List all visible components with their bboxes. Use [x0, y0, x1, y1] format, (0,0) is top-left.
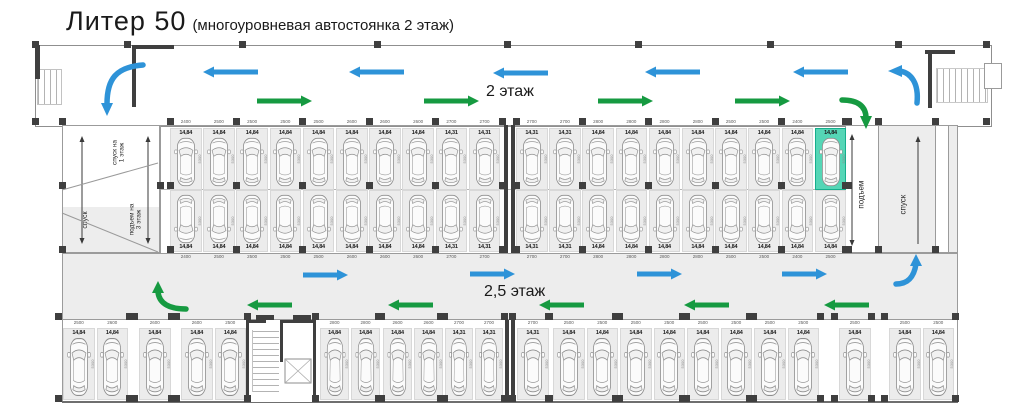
- stall-width-dim: 2800: [614, 254, 650, 259]
- stall-area-label: 14,84: [617, 244, 647, 250]
- column: [712, 118, 719, 125]
- column: [952, 313, 959, 320]
- stall-area-label: 14,84: [683, 244, 713, 250]
- parking-stall[interactable]: 14,845300: [351, 328, 380, 400]
- parking-stall[interactable]: 14,845300: [236, 128, 268, 190]
- stall-width-dim: 2800: [647, 254, 683, 259]
- parking-stall[interactable]: 14,845300: [63, 328, 95, 400]
- column: [545, 313, 552, 320]
- column: [32, 41, 39, 48]
- stall-area-label: 14,84: [271, 244, 301, 250]
- car-icon: [387, 337, 409, 397]
- parking-stall[interactable]: 14,845300: [215, 328, 247, 400]
- ramp-strip: [948, 126, 957, 252]
- column: [767, 41, 774, 48]
- stall-width-dim: 2600: [95, 320, 131, 325]
- parking-stall[interactable]: 14,845300: [369, 128, 401, 190]
- stall-area-label: 14,84: [655, 330, 685, 336]
- stall-area-label: 14,84: [337, 130, 367, 136]
- car-icon: [652, 137, 677, 187]
- stall-area-label: 14,84: [237, 244, 267, 250]
- column: [299, 182, 306, 189]
- stall-area-label: 14,84: [840, 330, 870, 336]
- car-icon: [218, 337, 243, 397]
- plan-title-sub: (многоуровневая автостоянка 2 этаж): [192, 17, 454, 34]
- stall-area-label: 14,84: [182, 330, 212, 336]
- stall-area-label: 14,84: [352, 330, 379, 336]
- stall-width-dim: 2600: [412, 320, 445, 325]
- stall-area-label: 14,84: [237, 130, 267, 136]
- parking-stall[interactable]: 14,845300: [839, 328, 871, 400]
- column: [545, 395, 552, 402]
- column: [513, 246, 520, 253]
- parking-stall[interactable]: 14,845300: [748, 128, 780, 190]
- car-icon: [207, 137, 232, 187]
- column: [645, 182, 652, 189]
- stall-area-label: 14,31: [517, 130, 547, 136]
- parking-stall[interactable]: 14,845300: [620, 328, 652, 400]
- car-icon: [174, 137, 199, 187]
- car-icon: [240, 194, 265, 244]
- parking-stall[interactable]: 14,845300: [782, 190, 814, 252]
- column: [499, 182, 506, 189]
- parking-stall[interactable]: 14,845300: [181, 328, 213, 400]
- column: [778, 118, 785, 125]
- floor-label-2-5: 2,5 этаж: [484, 283, 545, 301]
- stall-area-label: 14,31: [518, 330, 548, 336]
- column: [513, 182, 520, 189]
- stall-width-dim: 2500: [746, 119, 782, 124]
- stall-area-label: 14,31: [437, 130, 467, 136]
- stall-width-dim: 2600: [137, 320, 173, 325]
- column: [679, 395, 686, 402]
- outer-wall-right: [957, 125, 958, 403]
- stall-area-label: 14,84: [783, 130, 813, 136]
- ramp-label-down-right: спуск: [898, 187, 907, 223]
- ramp-label-up-3: подъем на 3 этаж: [129, 192, 144, 246]
- stall-width-dim: 2800: [349, 320, 382, 325]
- wall: [928, 50, 932, 108]
- parking-stall[interactable]: 14,845300: [553, 328, 585, 400]
- stall-area-label: 14,84: [617, 130, 647, 136]
- stall-area-label: 14,84: [650, 244, 680, 250]
- stall-width-dim: 2500: [551, 320, 587, 325]
- stall-width-dim: 2500: [719, 320, 755, 325]
- parking-stall[interactable]: 14,315300: [469, 190, 501, 252]
- column: [504, 41, 511, 48]
- parking-stall[interactable]: 14,845300: [336, 128, 368, 190]
- column: [746, 395, 753, 402]
- stall-width-dim: 2500: [746, 254, 782, 259]
- joint-wall: [504, 125, 508, 253]
- column: [374, 41, 381, 48]
- column: [645, 246, 652, 253]
- parking-stall[interactable]: 14,845300: [270, 128, 302, 190]
- column: [55, 313, 62, 320]
- stall-area-label: 14,84: [304, 130, 334, 136]
- parking-stall[interactable]: 14,845300: [402, 128, 434, 190]
- parking-stall[interactable]: 14,845300: [721, 328, 753, 400]
- wall: [132, 45, 136, 107]
- stall-width-dim: 2800: [614, 119, 650, 124]
- plan-title-main: Литер 50: [66, 6, 186, 36]
- column: [233, 246, 240, 253]
- car-icon: [785, 137, 810, 187]
- stall-area-label: 14,84: [716, 244, 746, 250]
- column: [712, 246, 719, 253]
- stall-width-dim: 2500: [887, 320, 923, 325]
- parking-stall[interactable]: 14,315300: [475, 328, 503, 400]
- stall-area-label: 14,31: [470, 130, 500, 136]
- stall-area-label: 14,84: [683, 130, 713, 136]
- car-icon: [100, 337, 125, 397]
- car-icon: [340, 194, 365, 244]
- stall-width-dim: 2500: [268, 254, 304, 259]
- column: [131, 395, 138, 402]
- stall-area-label: 14,84: [650, 130, 680, 136]
- parking-stall[interactable]: 14,845300: [923, 328, 955, 400]
- stall-width-dim: 2600: [334, 119, 370, 124]
- car-icon: [557, 337, 582, 397]
- floor-label-2: 2 этаж: [486, 83, 534, 101]
- joint-wall: [505, 320, 509, 402]
- parking-stall[interactable]: 14,845300: [616, 128, 648, 190]
- car-icon: [273, 194, 298, 244]
- stall-area-label: 14,84: [583, 244, 613, 250]
- car-icon: [406, 194, 431, 244]
- parking-stall[interactable]: 14,845300: [303, 128, 335, 190]
- stall-width-dim: 2500: [585, 320, 621, 325]
- parking-stall[interactable]: 14,315300: [469, 128, 501, 190]
- parking-stall[interactable]: 14,845300: [236, 190, 268, 252]
- column: [831, 395, 838, 402]
- car-icon: [406, 137, 431, 187]
- column: [612, 313, 619, 320]
- parking-stall[interactable]: 14,845300: [383, 328, 412, 400]
- car-icon: [373, 137, 398, 187]
- stall-width-dim: 2700: [547, 254, 583, 259]
- stall-width-dim: 2700: [434, 254, 470, 259]
- parking-stall[interactable]: 14,845300: [889, 328, 921, 400]
- stall-area-label: 14,84: [171, 130, 201, 136]
- parking-stall[interactable]: 14,315300: [516, 190, 548, 252]
- stall-area-label: 14,84: [271, 130, 301, 136]
- parking-stall[interactable]: 14,845300: [97, 328, 129, 400]
- stall-area-label: 14,84: [415, 330, 442, 336]
- joint-wall: [511, 320, 515, 402]
- stall-area-label: 14,84: [370, 130, 400, 136]
- parking-stall[interactable]: 14,845300: [682, 190, 714, 252]
- parking-stall[interactable]: 14,845300: [587, 328, 619, 400]
- column: [432, 182, 439, 189]
- stall-width-dim: 2800: [680, 119, 716, 124]
- stall-width-dim: 2500: [213, 320, 249, 325]
- stall-area-label: 14,84: [304, 244, 334, 250]
- car-icon: [207, 194, 232, 244]
- car-icon: [691, 337, 716, 397]
- car-icon: [652, 194, 677, 244]
- column: [895, 41, 902, 48]
- column: [59, 246, 66, 253]
- parking-stall[interactable]: 14,845300: [402, 190, 434, 252]
- parking-stall[interactable]: 14,845300: [782, 128, 814, 190]
- car-icon: [785, 194, 810, 244]
- wall: [35, 45, 40, 79]
- stall-width-dim: 2500: [713, 254, 749, 259]
- car-icon: [240, 137, 265, 187]
- stall-width-dim: 2600: [179, 320, 215, 325]
- column: [239, 41, 246, 48]
- stall-width-dim: 2500: [234, 254, 270, 259]
- parking-stall[interactable]: 14,845300: [649, 128, 681, 190]
- stall-area-label: 14,84: [688, 330, 718, 336]
- core-wall: [246, 320, 266, 323]
- car-icon: [586, 194, 611, 244]
- parking-stall[interactable]: 14,845300: [582, 190, 614, 252]
- stall-width-dim: 2500: [618, 320, 654, 325]
- car-icon: [185, 337, 210, 397]
- stall-width-dim: 2800: [580, 254, 616, 259]
- column: [842, 246, 849, 253]
- stall-area-label: 14,84: [171, 244, 201, 250]
- stall-width-dim: 2600: [381, 320, 414, 325]
- stall-area-label: 14,84: [98, 330, 128, 336]
- car-icon: [752, 137, 777, 187]
- ramp-left-lower: [63, 207, 159, 252]
- column: [501, 395, 508, 402]
- core-wall: [246, 320, 249, 402]
- car-icon: [657, 337, 682, 397]
- car-icon: [340, 137, 365, 187]
- column: [983, 41, 990, 48]
- column: [167, 182, 174, 189]
- stall-width-dim: 2500: [752, 320, 788, 325]
- column: [312, 395, 319, 402]
- column: [842, 182, 849, 189]
- column: [612, 395, 619, 402]
- parking-stall[interactable]: 14,845300: [754, 328, 786, 400]
- parking-stall[interactable]: 14,315300: [517, 328, 549, 400]
- column: [509, 313, 516, 320]
- car-icon: [758, 337, 783, 397]
- joint-wall: [511, 125, 515, 253]
- car-icon: [355, 337, 377, 397]
- column: [432, 118, 439, 125]
- parking-stall[interactable]: 14,845300: [687, 328, 719, 400]
- column: [932, 118, 939, 125]
- stall-width-dim: 2700: [473, 320, 505, 325]
- column: [299, 118, 306, 125]
- column: [375, 395, 382, 402]
- stall-area-label: 14,84: [204, 130, 234, 136]
- ramp-label-down-1: спуск на 1 этаж: [112, 127, 127, 177]
- parking-stall[interactable]: 14,315300: [549, 128, 581, 190]
- car-icon: [273, 137, 298, 187]
- parking-stall[interactable]: 14,845300: [715, 190, 747, 252]
- parking-stall[interactable]: 14,845300: [748, 190, 780, 252]
- stairs-top-right: [936, 68, 988, 103]
- parking-stall[interactable]: 14,315300: [549, 190, 581, 252]
- parking-stall[interactable]: 14,845300: [788, 328, 820, 400]
- column: [366, 118, 373, 125]
- column: [233, 182, 240, 189]
- parking-stall[interactable]: 14,845300: [715, 128, 747, 190]
- stall-area-label: 14,31: [476, 330, 502, 336]
- stall-area-label: 14,84: [140, 330, 170, 336]
- stall-area-label: 14,84: [337, 244, 367, 250]
- parking-stall[interactable]: 14,845300: [682, 128, 714, 190]
- stall-width-dim: 2500: [786, 320, 822, 325]
- parking-stall[interactable]: 14,845300: [336, 190, 368, 252]
- parking-stall[interactable]: 14,845300: [270, 190, 302, 252]
- parking-stall[interactable]: 14,845300: [414, 328, 443, 400]
- stall-width-dim: 2400: [168, 254, 204, 259]
- parking-stall[interactable]: 14,845300: [170, 128, 202, 190]
- stall-width-dim: 2500: [201, 119, 237, 124]
- car-icon: [143, 337, 168, 397]
- stall-area-label: 14,31: [550, 244, 580, 250]
- car-icon: [472, 194, 497, 244]
- car-icon: [306, 194, 331, 244]
- car-icon: [724, 337, 749, 397]
- stall-width-dim: 2500: [921, 320, 957, 325]
- parking-stall-selected[interactable]: 14,845300: [815, 128, 847, 190]
- mid-block-left: [160, 125, 161, 253]
- parking-stall[interactable]: 14,845300: [139, 328, 171, 400]
- stall-area-label: 14,84: [816, 130, 846, 136]
- car-icon: [893, 337, 918, 397]
- stall-width-dim: 2700: [467, 119, 503, 124]
- stall-width-dim: 2500: [837, 320, 873, 325]
- stall-area-label: 14,31: [550, 130, 580, 136]
- car-icon: [373, 194, 398, 244]
- column: [817, 313, 824, 320]
- car-icon: [752, 194, 777, 244]
- car-icon: [439, 194, 464, 244]
- elevator-icon: [284, 358, 312, 384]
- parking-stall[interactable]: 14,845300: [815, 190, 847, 252]
- car-icon: [521, 337, 546, 397]
- parking-stall[interactable]: 14,845300: [303, 190, 335, 252]
- lane-line: [935, 125, 936, 253]
- car-icon: [926, 337, 951, 397]
- column: [778, 246, 785, 253]
- car-icon: [818, 194, 843, 244]
- stall-width-dim: 2700: [514, 254, 550, 259]
- column: [509, 395, 516, 402]
- parking-stall[interactable]: 14,845300: [616, 190, 648, 252]
- stall-area-label: 14,84: [890, 330, 920, 336]
- column: [437, 395, 444, 402]
- ramp-label-up: подъем: [856, 172, 865, 218]
- stall-area-label: 14,84: [384, 330, 411, 336]
- column: [299, 246, 306, 253]
- lane-line: [878, 125, 879, 253]
- parking-stall[interactable]: 14,845300: [369, 190, 401, 252]
- parking-stall[interactable]: 14,845300: [320, 328, 349, 400]
- car-icon: [619, 137, 644, 187]
- car-icon: [791, 337, 816, 397]
- mid-block-top: [160, 125, 845, 126]
- column: [55, 395, 62, 402]
- column: [375, 313, 382, 320]
- column: [131, 313, 138, 320]
- stall-width-dim: 2700: [443, 320, 475, 325]
- column: [244, 395, 251, 402]
- parking-stall[interactable]: 14,845300: [203, 190, 235, 252]
- column: [831, 313, 838, 320]
- stall-width-dim: 2700: [467, 254, 503, 259]
- floor-plan-canvas: Литер 50(многоуровневая автостоянка 2 эт…: [0, 0, 1024, 410]
- parking-stall[interactable]: 14,845300: [170, 190, 202, 252]
- stall-area-label: 14,84: [216, 330, 246, 336]
- column: [712, 182, 719, 189]
- parking-stall[interactable]: 14,315300: [516, 128, 548, 190]
- stall-width-dim: 2700: [547, 119, 583, 124]
- exit-tab: [984, 63, 1002, 89]
- column: [59, 182, 66, 189]
- car-icon: [818, 137, 843, 187]
- stall-area-label: 14,84: [749, 244, 779, 250]
- stall-area-label: 14,84: [204, 244, 234, 250]
- parking-stall[interactable]: 14,845300: [649, 190, 681, 252]
- stall-area-label: 14,84: [588, 330, 618, 336]
- column: [233, 118, 240, 125]
- column: [59, 118, 66, 125]
- parking-stall[interactable]: 14,845300: [203, 128, 235, 190]
- car-icon: [553, 194, 578, 244]
- car-icon: [619, 194, 644, 244]
- column: [244, 313, 251, 320]
- stall-width-dim: 2400: [780, 254, 816, 259]
- car-icon: [553, 137, 578, 187]
- column: [513, 118, 520, 125]
- stall-area-label: 14,84: [554, 330, 584, 336]
- column: [778, 182, 785, 189]
- parking-stall[interactable]: 14,845300: [654, 328, 686, 400]
- stall-area-label: 14,84: [783, 244, 813, 250]
- stall-area-label: 14,84: [924, 330, 954, 336]
- stall-area-label: 14,84: [621, 330, 651, 336]
- lane-line: [948, 125, 949, 253]
- parking-stall[interactable]: 14,315300: [445, 328, 473, 400]
- stairs-top-left: [37, 69, 62, 105]
- column: [501, 313, 508, 320]
- stall-width-dim: 2500: [813, 254, 849, 259]
- stairs-bottom-core: [252, 330, 279, 392]
- car-icon: [719, 194, 744, 244]
- car-icon: [174, 194, 199, 244]
- column: [32, 118, 39, 125]
- column: [499, 246, 506, 253]
- column: [366, 182, 373, 189]
- stall-area-label: 14,31: [446, 330, 472, 336]
- wall: [925, 50, 955, 54]
- column: [173, 313, 180, 320]
- column: [635, 41, 642, 48]
- parking-stall[interactable]: 14,315300: [436, 190, 468, 252]
- parking-stall[interactable]: 14,315300: [436, 128, 468, 190]
- parking-stall[interactable]: 14,845300: [582, 128, 614, 190]
- column: [579, 246, 586, 253]
- column: [499, 118, 506, 125]
- stall-width-dim: 2500: [301, 254, 337, 259]
- stall-area-label: 14,84: [583, 130, 613, 136]
- column: [932, 246, 939, 253]
- car-icon: [843, 337, 868, 397]
- stall-area-label: 14,84: [749, 130, 779, 136]
- car-icon: [67, 337, 92, 397]
